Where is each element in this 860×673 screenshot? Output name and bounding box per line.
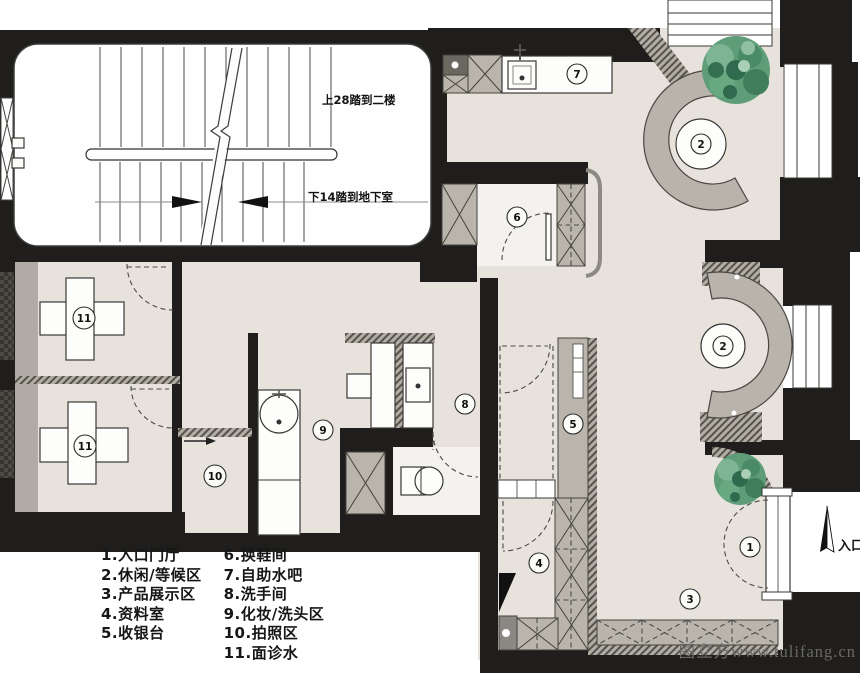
legend-item: 7.自助水吧	[224, 566, 325, 586]
badge-room-6: 6	[507, 207, 527, 227]
legend-item: 10.拍照区	[224, 624, 325, 644]
badge-room-5: 5	[563, 414, 583, 434]
staircase: 上28踏到二楼 下14踏到地下室	[1, 44, 431, 246]
window-right-upper	[784, 64, 832, 178]
window-right-lower	[793, 305, 832, 388]
svg-text:1: 1	[746, 542, 753, 554]
legend-item: 8.洗手间	[224, 585, 325, 605]
watermark: 图立方www.tulifang.cn	[679, 642, 856, 661]
badge-room-10: 10	[204, 465, 226, 487]
badge-room-4: 4	[529, 553, 549, 573]
badge-room-2: 2	[691, 134, 711, 154]
svg-text:11: 11	[77, 313, 92, 325]
svg-text:2: 2	[719, 341, 726, 353]
entrance-arrow-icon	[820, 506, 834, 552]
stairs-down-note: 下14踏到地下室	[308, 190, 394, 204]
legend-column-1: 1.入口门厅 2.休闲/等候区 3.产品展示区 4.资料室 5.收银台	[101, 546, 202, 664]
legend-item: 9.化妆/洗头区	[224, 605, 325, 625]
svg-text:4: 4	[535, 558, 542, 570]
chair	[347, 374, 371, 398]
legend-item: 3.产品展示区	[101, 585, 202, 605]
handrail	[86, 149, 337, 160]
svg-text:9: 9	[319, 425, 326, 437]
wall-fixture	[12, 138, 24, 148]
badge-room-2b: 2	[713, 336, 733, 356]
badge-room-9: 9	[313, 420, 333, 440]
floor-plan-page: 上28踏到二楼 下14踏到地下室	[0, 0, 860, 673]
legend-item: 1.入口门厅	[101, 546, 202, 566]
svg-text:11: 11	[78, 441, 93, 453]
masonry-column	[0, 272, 14, 360]
legend-item: 2.休闲/等候区	[101, 566, 202, 586]
svg-text:6: 6	[513, 212, 520, 224]
svg-text:2: 2	[697, 139, 704, 151]
badge-room-7: 7	[567, 64, 587, 84]
legend-item: 5.收银台	[101, 624, 202, 644]
svg-text:8: 8	[461, 399, 468, 411]
wall-fixture	[12, 158, 24, 168]
badge-room-11b: 11	[74, 435, 96, 457]
bar-sink-icon	[508, 61, 536, 89]
window-top	[668, 0, 772, 46]
entrance-label: 入口	[838, 539, 860, 554]
tree-icon	[714, 453, 766, 505]
stair-window	[1, 98, 13, 200]
svg-text:5: 5	[569, 419, 576, 431]
svg-text:10: 10	[208, 471, 223, 483]
washbasin-icon	[260, 395, 298, 433]
badge-room-11: 11	[73, 307, 95, 329]
tree-icon	[702, 36, 770, 104]
vanity-counter	[371, 343, 395, 428]
badge-room-1: 1	[740, 537, 760, 557]
svg-text:7: 7	[573, 69, 580, 81]
legend-item: 11.面诊水	[224, 644, 325, 664]
badge-room-8: 8	[455, 394, 475, 414]
door-frame	[498, 480, 555, 498]
svg-text:3: 3	[686, 594, 693, 606]
stairs-up-note: 上28踏到二楼	[322, 93, 396, 107]
masonry-column	[0, 390, 14, 478]
legend-column-2: 6.换鞋间 7.自助水吧 8.洗手间 9.化妆/洗头区 10.拍照区 11.面诊…	[224, 546, 325, 664]
door-leaf	[546, 214, 551, 260]
legend-item: 4.资料室	[101, 605, 202, 625]
legend-item: 6.换鞋间	[224, 546, 325, 566]
badge-room-3: 3	[680, 589, 700, 609]
legend: 1.入口门厅 2.休闲/等候区 3.产品展示区 4.资料室 5.收银台 6.换鞋…	[101, 546, 324, 664]
